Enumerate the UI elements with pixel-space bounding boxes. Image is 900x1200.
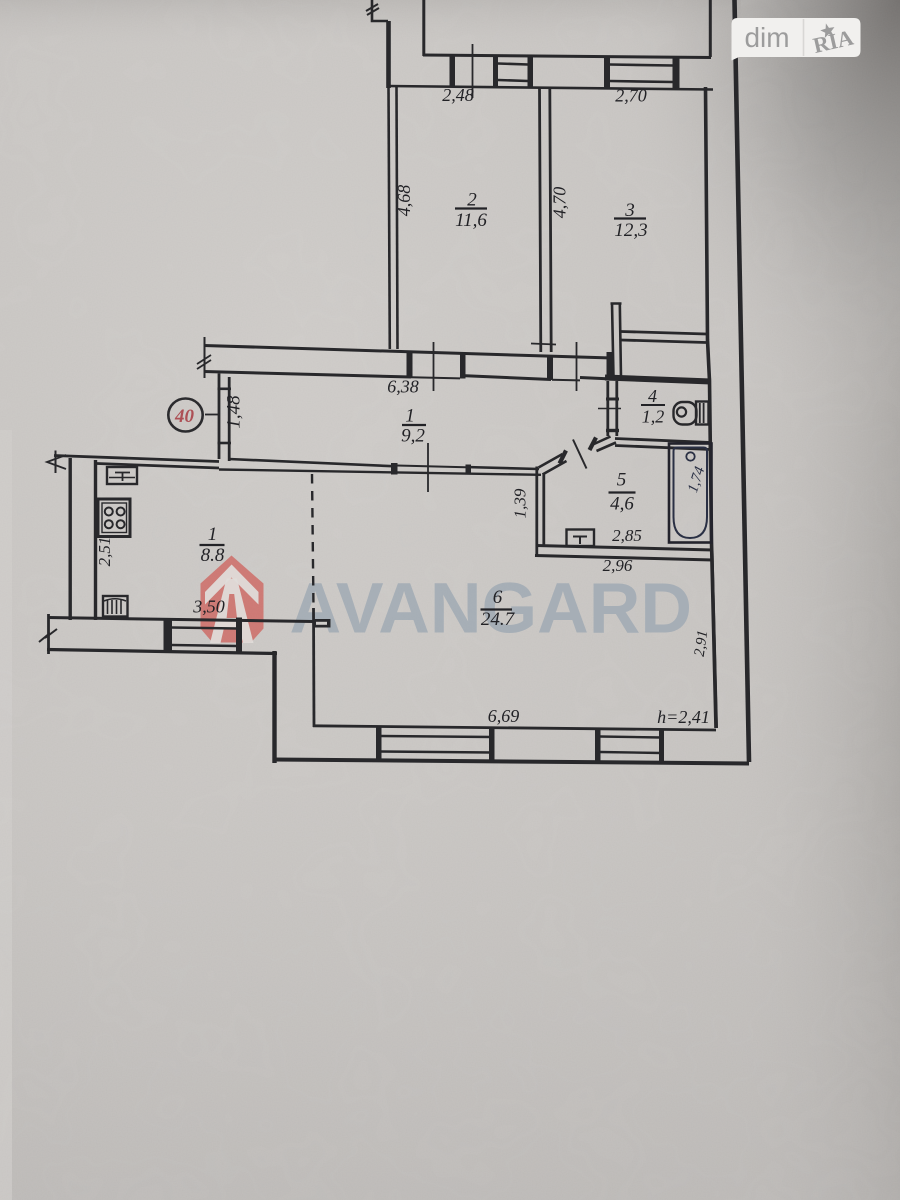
svg-text:1: 1 <box>208 524 218 545</box>
svg-text:3,50: 3,50 <box>192 597 225 617</box>
svg-text:6,69: 6,69 <box>488 706 520 726</box>
svg-text:11,6: 11,6 <box>455 210 487 231</box>
svg-text:4,70: 4,70 <box>550 187 570 219</box>
svg-text:6,38: 6,38 <box>387 377 419 397</box>
svg-text:12,3: 12,3 <box>614 220 647 241</box>
svg-text:1,2: 1,2 <box>642 407 665 427</box>
svg-text:1,48: 1,48 <box>224 395 245 429</box>
svg-text:4,68: 4,68 <box>394 185 414 217</box>
svg-text:6: 6 <box>493 587 503 608</box>
svg-text:8.8: 8.8 <box>201 545 225 566</box>
svg-text:2,51: 2,51 <box>95 537 114 567</box>
svg-text:4: 4 <box>648 386 657 406</box>
svg-text:1: 1 <box>405 406 415 427</box>
svg-text:2,70: 2,70 <box>615 86 647 106</box>
svg-text:2,48: 2,48 <box>442 85 474 105</box>
svg-text:5: 5 <box>617 470 627 491</box>
svg-text:2: 2 <box>467 190 477 211</box>
svg-text:h=2,41: h=2,41 <box>657 707 710 727</box>
svg-text:dim: dim <box>744 22 789 53</box>
svg-text:4,6: 4,6 <box>610 494 634 515</box>
svg-text:2,96: 2,96 <box>603 556 633 575</box>
svg-text:1,39: 1,39 <box>511 488 530 518</box>
svg-text:9,2: 9,2 <box>401 426 425 447</box>
svg-text:2,85: 2,85 <box>612 526 642 545</box>
svg-text:24.7: 24.7 <box>481 609 516 630</box>
svg-text:40: 40 <box>174 406 195 427</box>
